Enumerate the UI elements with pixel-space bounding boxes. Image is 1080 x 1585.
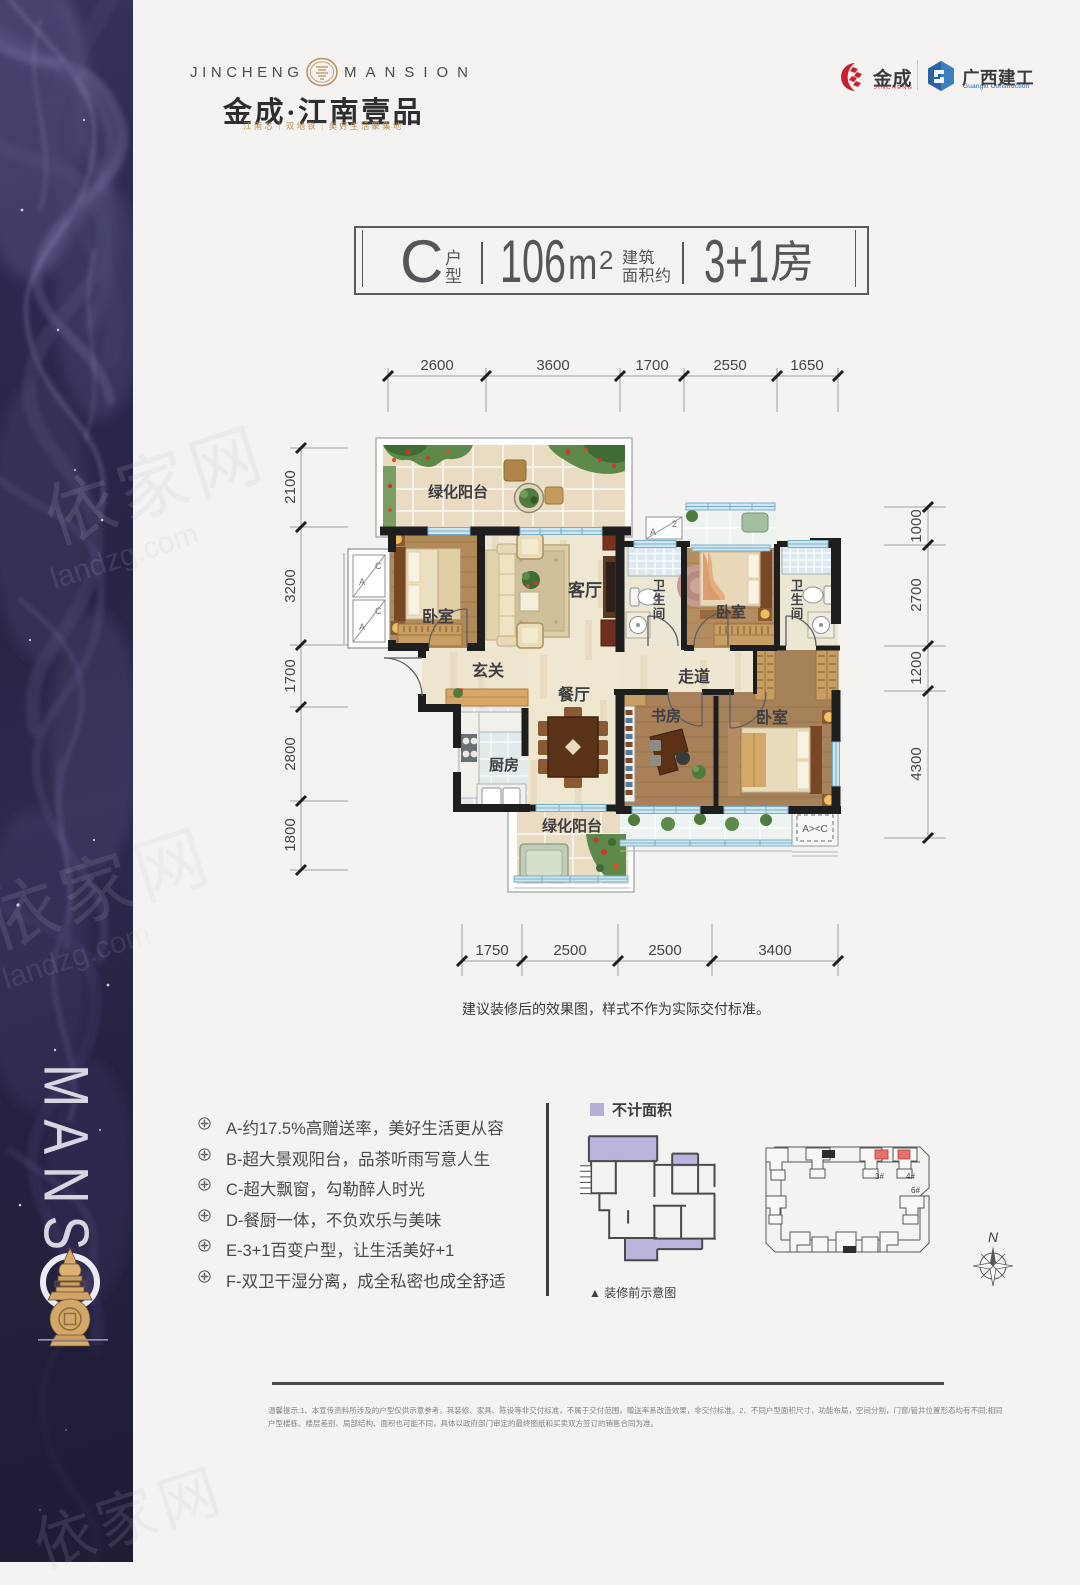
svg-text:走道: 走道 <box>677 667 710 686</box>
svg-text:A: A <box>359 622 365 632</box>
svg-text:卧室: 卧室 <box>756 708 788 727</box>
svg-text:2500: 2500 <box>648 942 681 959</box>
svg-text:3600: 3600 <box>536 357 569 374</box>
svg-text:▲ 装修前示意图: ▲ 装修前示意图 <box>589 1285 676 1300</box>
svg-text:厨房: 厨房 <box>489 756 519 774</box>
svg-text:1200: 1200 <box>908 651 925 684</box>
svg-text:6#: 6# <box>911 1186 920 1195</box>
svg-text:1700: 1700 <box>635 357 668 374</box>
svg-text:绿化阳台: 绿化阳台 <box>542 817 602 835</box>
svg-text:2800: 2800 <box>282 737 299 770</box>
svg-text:卧室: 卧室 <box>422 607 454 626</box>
svg-text:N: N <box>988 1229 999 1245</box>
svg-text:1000: 1000 <box>908 509 925 542</box>
svg-text:生: 生 <box>791 592 804 607</box>
svg-text:2700: 2700 <box>908 578 925 611</box>
svg-text:2600: 2600 <box>420 357 453 374</box>
svg-text:客厅: 客厅 <box>567 580 602 600</box>
svg-text:3400: 3400 <box>758 942 791 959</box>
svg-text:2550: 2550 <box>713 357 746 374</box>
svg-text:4300: 4300 <box>908 747 925 780</box>
svg-text:2: 2 <box>672 519 677 529</box>
svg-text:餐厅: 餐厅 <box>557 685 590 704</box>
svg-text:卧室: 卧室 <box>716 603 746 621</box>
svg-text:1700: 1700 <box>282 659 299 692</box>
svg-text:卫: 卫 <box>791 579 804 593</box>
svg-text:3#: 3# <box>875 1172 884 1181</box>
svg-text:2500: 2500 <box>553 942 586 959</box>
svg-text:生: 生 <box>653 592 666 607</box>
svg-text:卫: 卫 <box>653 579 666 593</box>
svg-text:绿化阳台: 绿化阳台 <box>428 483 488 501</box>
svg-text:2100: 2100 <box>282 470 299 503</box>
svg-text:书房: 书房 <box>651 707 681 725</box>
svg-text:A: A <box>359 577 365 587</box>
svg-text:1800: 1800 <box>282 818 299 851</box>
svg-text:间: 间 <box>791 606 804 621</box>
svg-text:玄关: 玄关 <box>472 661 504 680</box>
svg-text:间: 间 <box>653 606 666 621</box>
svg-text:C: C <box>375 606 382 616</box>
svg-text:3200: 3200 <box>282 569 299 602</box>
svg-text:C: C <box>375 561 382 571</box>
svg-text:4#: 4# <box>906 1172 915 1181</box>
svg-text:1650: 1650 <box>790 357 823 374</box>
svg-text:A><C: A><C <box>802 824 828 835</box>
svg-text:A: A <box>650 527 656 537</box>
svg-text:不计面积: 不计面积 <box>612 1101 672 1119</box>
svg-text:1750: 1750 <box>475 942 508 959</box>
